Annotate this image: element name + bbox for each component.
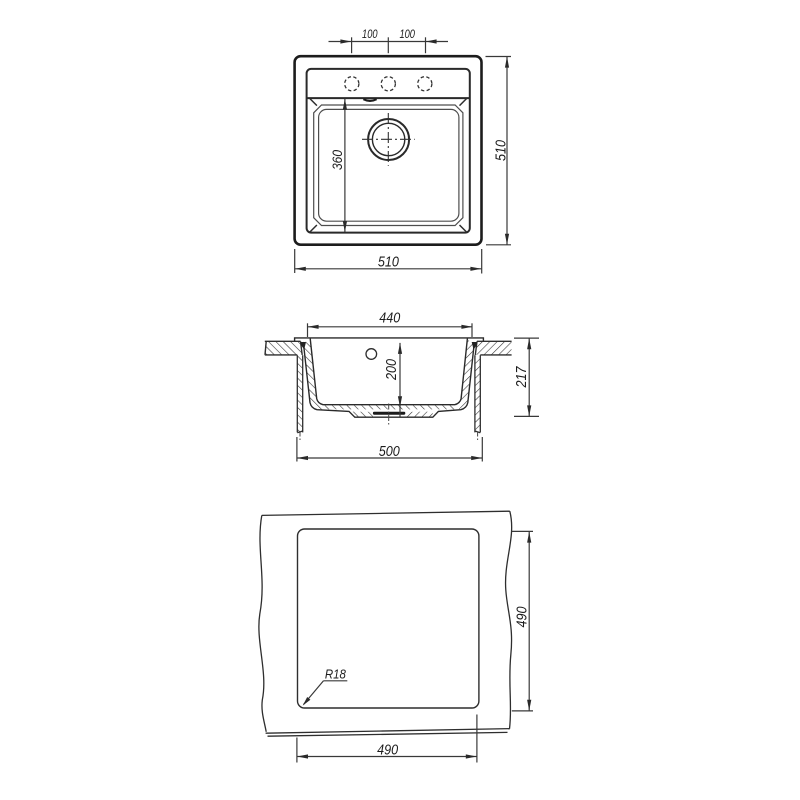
svg-text:360: 360	[330, 150, 345, 170]
svg-text:490: 490	[377, 742, 398, 758]
svg-text:510: 510	[494, 140, 510, 161]
svg-text:510: 510	[378, 254, 400, 271]
svg-text:100: 100	[362, 27, 378, 41]
svg-text:217: 217	[514, 366, 530, 389]
svg-text:R18: R18	[325, 667, 347, 682]
svg-text:200: 200	[384, 359, 400, 381]
svg-text:500: 500	[379, 444, 400, 460]
svg-text:440: 440	[379, 311, 400, 327]
svg-text:100: 100	[399, 27, 415, 41]
svg-text:490: 490	[514, 607, 530, 628]
